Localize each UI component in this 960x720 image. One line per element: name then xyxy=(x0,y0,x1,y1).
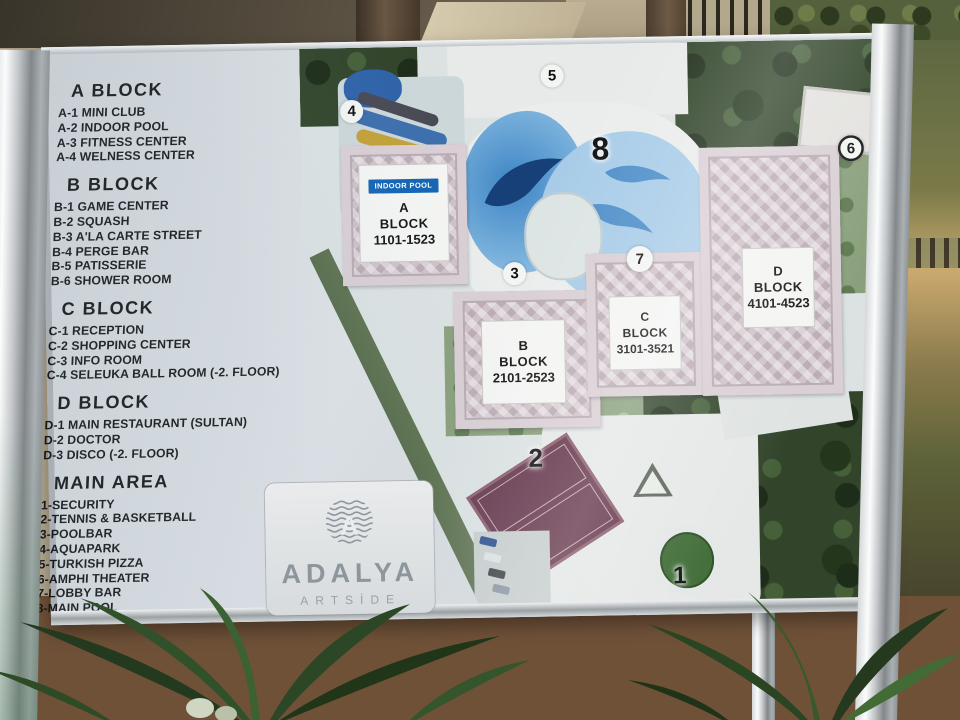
background-railing xyxy=(902,238,960,268)
block-word: BLOCK xyxy=(754,279,803,296)
legend-heading: B BLOCK xyxy=(67,171,298,196)
block-word: BLOCK xyxy=(499,354,548,371)
car xyxy=(479,536,497,548)
legend-heading: C BLOCK xyxy=(61,295,292,320)
legend-item: D-3 DISCO (-2. FLOOR) xyxy=(43,444,286,463)
car xyxy=(483,552,501,564)
block-letter: B xyxy=(518,338,528,354)
legend-heading: A BLOCK xyxy=(71,77,302,102)
palm-fronds-left xyxy=(0,588,530,720)
block-b-label: B BLOCK 2101-2523 xyxy=(482,320,565,403)
block-rooms: 4101-4523 xyxy=(747,295,809,312)
block-word: BLOCK xyxy=(380,215,429,232)
car xyxy=(488,568,506,580)
legend-section-d-block: D BLOCK D-1 MAIN RESTAURANT (SULTAN) D-2… xyxy=(39,389,288,463)
legend-heading: D BLOCK xyxy=(57,389,288,414)
block-letter: A xyxy=(399,199,409,215)
legend-item: A-4 WELNESS CENTER xyxy=(56,146,299,165)
legend-section-b-block: B BLOCK B-1 GAME CENTER B-2 SQUASH B-3 A… xyxy=(47,171,298,289)
logo-brand-text: ADALYA xyxy=(281,556,419,589)
legend: A BLOCK A-1 MINI CLUB A-2 INDOOR POOL A-… xyxy=(32,77,302,627)
block-word: BLOCK xyxy=(622,324,667,341)
legend-heading: MAIN AREA xyxy=(54,469,285,494)
block-d-label: D BLOCK 4101-4523 xyxy=(743,248,814,327)
block-rooms: 2101-2523 xyxy=(493,369,555,386)
indoor-pool-badge: INDOOR POOL xyxy=(368,178,438,193)
block-rooms: 3101-3521 xyxy=(617,340,675,357)
block-letter: D xyxy=(773,263,783,279)
photo-of-resort-map-sign: A BLOCK A-1 MINI CLUB A-2 INDOOR POOL A-… xyxy=(0,0,960,720)
block-rooms: 1101-1523 xyxy=(374,231,436,248)
block-a-label: INDOOR POOL A BLOCK 1101-1523 xyxy=(359,164,449,262)
legend-item: C-4 SELEUKA BALL ROOM (-2. FLOOR) xyxy=(46,364,289,383)
block-c-label: C BLOCK 3101-3521 xyxy=(609,296,680,369)
marker-8: 8 xyxy=(589,137,612,160)
legend-item: B-6 SHOWER ROOM xyxy=(51,270,294,289)
emblem-letter: A xyxy=(340,510,360,540)
adalya-wave-emblem: A xyxy=(318,489,381,552)
legend-section-c-block: C BLOCK C-1 RECEPTION C-2 SHOPPING CENTE… xyxy=(42,295,292,384)
block-letter: C xyxy=(640,309,649,325)
resort-map-sign-board: A BLOCK A-1 MINI CLUB A-2 INDOOR POOL A-… xyxy=(41,33,889,626)
palm-fronds-right xyxy=(628,584,960,720)
legend-section-a-block: A BLOCK A-1 MINI CLUB A-2 INDOOR POOL A-… xyxy=(52,77,302,166)
